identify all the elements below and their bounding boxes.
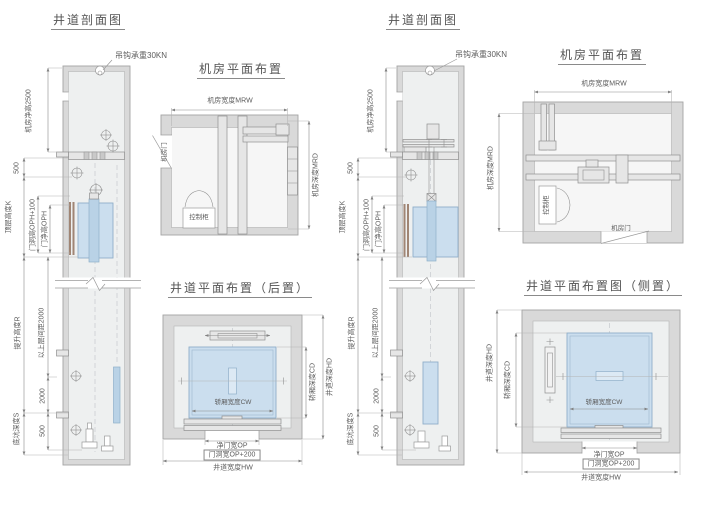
- dim-label-mrd: 机房深度MRD: [313, 153, 320, 197]
- drawing-linework: [0, 0, 710, 511]
- dim-label-car-depth: 轿厢深度CD: [310, 363, 317, 401]
- dim-label-door-clear-height: 门净高OPH: [42, 211, 49, 247]
- dim-label-door-opening-width-right: 门洞宽OP+200: [583, 459, 640, 470]
- machine-room-plan-right-drawing: [499, 90, 683, 244]
- dim-label-door-clear-width: 净门宽OP: [216, 443, 247, 450]
- dim-label-pit-depth-right: 底坑深度S: [348, 413, 355, 446]
- dim-label-car-width-right: 轿厢宽度CW: [586, 400, 623, 407]
- dim-label-top-floor-height: 顶层高度K: [6, 201, 13, 234]
- dim-label-mrw-right: 机房宽度MRW: [581, 81, 626, 88]
- machine-room-door-label: 机房门: [162, 142, 169, 162]
- dim-label-shaft-width: 井道宽度HW: [213, 465, 253, 472]
- control-cabinet-label-right: 控制柜: [544, 195, 551, 215]
- dim-label-shaft-width-right: 井道宽度HW: [581, 475, 621, 482]
- machine-room-plan-left-drawing: [153, 108, 310, 235]
- elevator-layout-drawing-sheet: 井道剖面图 吊钩承重30KN 机房净高2500 500 顶层高度K 门洞高OPH…: [0, 0, 710, 511]
- dim-label-door-clear-width-right: 净门宽OP: [593, 452, 624, 459]
- panel-title-machine-room-left: 机房平面布置: [197, 63, 285, 79]
- dim-label-pit-depth: 底坑深度S: [14, 413, 21, 446]
- panel-title-shaft-section-left: 井道剖面图: [51, 14, 125, 30]
- dim-label-machine-room-height: 机房净高2500: [26, 89, 33, 133]
- hook-capacity-note-right: 吊钩承重30KN: [455, 51, 507, 59]
- shaft-section-left-drawing: [24, 60, 141, 465]
- dim-label-door-opening-width: 门洞宽OP+200: [204, 450, 261, 461]
- dim-label-2000-right: 2000: [374, 388, 381, 404]
- panel-title-shaft-section-right: 井道剖面图: [386, 14, 460, 30]
- dim-label-car-width: 轿厢宽度CW: [215, 400, 252, 407]
- panel-title-shaft-plan-rear: 井道平面布置（后置）: [168, 282, 312, 298]
- control-cabinet-label: 控制柜: [189, 215, 209, 222]
- panel-title-machine-room-right: 机房平面布置: [558, 49, 646, 65]
- dim-label-door-clear-height-right: 门净高OPH: [376, 211, 383, 247]
- dim-label-top-floor-height-right: 顶层高度K: [340, 201, 347, 234]
- shaft-plan-side-drawing: [497, 310, 680, 475]
- dim-label-machine-room-height-right: 机房净高2500: [368, 89, 375, 133]
- dim-label-floor-spacing-right: 以上层间距2000: [373, 308, 380, 359]
- dim-label-mrw: 机房宽度MRW: [207, 98, 252, 105]
- dim-label-door-opening-height-right: 门洞高OPH+100: [364, 199, 371, 251]
- machine-room-door-label-right: 机房门: [611, 226, 631, 233]
- dim-label-2000: 2000: [40, 388, 47, 404]
- dim-label-500-bottom-right: 500: [374, 425, 381, 437]
- dim-label-mrd-right: 机房深度MRD: [488, 146, 495, 190]
- dim-label-500-bottom: 500: [40, 425, 47, 437]
- dim-label-shaft-depth: 井道深度HD: [327, 358, 334, 396]
- panel-title-shaft-plan-side: 井道平面布置图（侧置）: [524, 280, 682, 296]
- dim-label-door-opening-height: 门洞高OPH+100: [30, 199, 37, 251]
- dim-label-travel-height-right: 提升高度R: [349, 316, 356, 349]
- dim-label-500-top: 500: [14, 162, 21, 174]
- hook-capacity-note: 吊钩承重30KN: [115, 52, 167, 60]
- dim-label-travel-height: 提升高度R: [15, 316, 22, 349]
- dim-label-shaft-depth-right: 井道深度HD: [487, 344, 494, 382]
- dim-label-500-top-right: 500: [348, 162, 355, 174]
- shaft-section-right-drawing: [358, 59, 475, 465]
- dim-label-car-depth-right: 轿厢深度CD: [505, 361, 512, 399]
- dim-label-floor-spacing: 以上层间距2000: [39, 308, 46, 359]
